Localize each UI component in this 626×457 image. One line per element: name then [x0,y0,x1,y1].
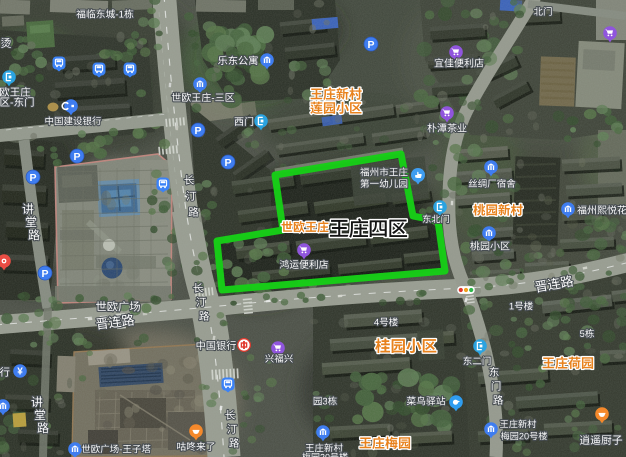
svg-text:P: P [194,125,201,137]
svg-text:P: P [224,157,231,169]
svg-text:P: P [73,151,80,163]
svg-text:P: P [29,172,36,184]
svg-text:¥: ¥ [17,367,23,378]
svg-text:P: P [367,39,374,51]
svg-text:P: P [41,268,48,280]
